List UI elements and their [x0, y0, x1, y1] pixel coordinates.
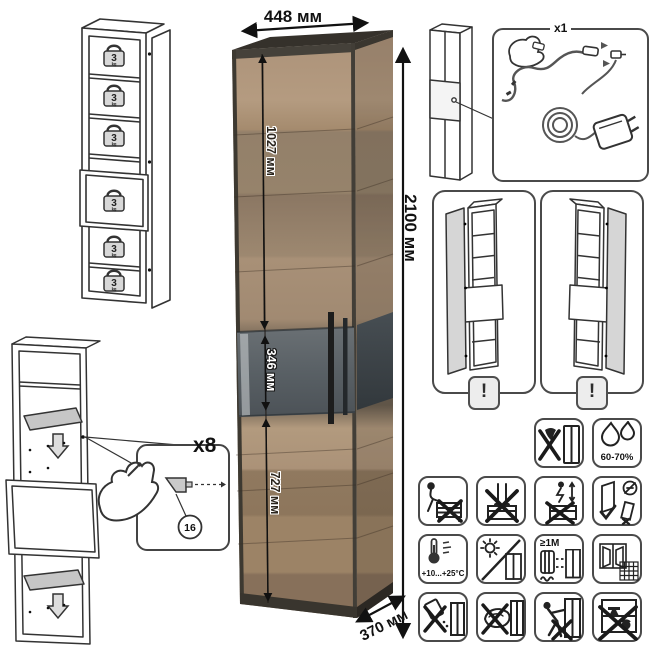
- temperature-label: +10...+25°C: [420, 569, 466, 578]
- cabinet-product-render: [225, 25, 425, 640]
- middle-section-label: 346 мм: [264, 340, 278, 400]
- cable-hole: [452, 98, 456, 102]
- shelf-load-diagram: 3 kg 3 kg 3 kg 3 kg: [48, 12, 193, 312]
- svg-text:kg: kg: [112, 207, 117, 212]
- hinge-dots: [148, 52, 151, 271]
- door-adjustment-pictogram: [592, 476, 642, 526]
- no-overload-pictogram: [592, 592, 642, 642]
- door-option-right-panel: [540, 190, 644, 394]
- led-kit-panel: x1: [492, 28, 649, 182]
- no-standing-icon: [479, 479, 525, 525]
- right-option-warning-badge: !: [576, 376, 608, 410]
- svg-text:kg: kg: [112, 62, 117, 67]
- part-number-label: 16: [184, 522, 196, 534]
- no-sunlight-icon: [479, 537, 525, 583]
- humidity-pictogram: 60-70%: [592, 418, 642, 468]
- no-jumping-pictogram: [534, 476, 584, 526]
- radiator-distance-pictogram: ≥1М: [534, 534, 584, 584]
- door-handle: [328, 312, 334, 424]
- open-door: [152, 30, 170, 308]
- lower-section-label: 727 мм: [268, 463, 282, 523]
- led-kit-art: [494, 30, 643, 176]
- ventilation-pictogram: [592, 534, 642, 584]
- no-sitting-pictogram: [418, 476, 468, 526]
- no-jumping-icon: [537, 479, 583, 525]
- temperature-pictogram: +10...+25°C: [418, 534, 468, 584]
- power-adapter-icon: [593, 111, 642, 150]
- height-dimension-label: 2100 мм: [400, 186, 420, 270]
- svg-text:kg: kg: [112, 102, 117, 107]
- radiator-distance-label: ≥1М: [540, 538, 559, 549]
- led-qty-label: x1: [550, 21, 571, 35]
- door-option-right-art: [542, 192, 638, 388]
- hand-plugging-icon: [509, 37, 544, 67]
- svg-text:kg: kg: [112, 142, 117, 147]
- cabinet-back-view: [420, 18, 498, 188]
- upper-section-label: 1027 мм: [264, 116, 278, 186]
- shelf-assembly-diagram: x8 16: [0, 330, 235, 650]
- no-abrasive-icon: [479, 595, 525, 641]
- ventilation-icon: [595, 537, 641, 583]
- water-drops-icon: [595, 421, 641, 451]
- humidity-label: 60-70%: [594, 452, 640, 463]
- no-pushing-pictogram: [534, 592, 584, 642]
- left-option-warning-badge: !: [468, 376, 500, 410]
- glass-side: [357, 312, 393, 410]
- hardware-qty-label: x8: [193, 434, 217, 457]
- no-impact-icon: [537, 421, 583, 467]
- no-standing-pictogram: [476, 476, 526, 526]
- no-pushing-icon: [537, 595, 583, 641]
- connector-and-jack: [583, 42, 626, 67]
- no-sunlight-pictogram: [476, 534, 526, 584]
- instruction-sheet: 3 kg 3 kg 3 kg 3 kg: [0, 0, 650, 650]
- svg-text:kg: kg: [112, 253, 117, 258]
- no-abrasive-pictogram: [476, 592, 526, 642]
- no-spill-icon: [421, 595, 467, 641]
- svg-text:kg: kg: [112, 287, 117, 292]
- no-impact-pictogram: [534, 418, 584, 468]
- radiator-distance-icon: [537, 549, 583, 582]
- care-pictogram-grid: 60-70%: [412, 412, 650, 650]
- no-overload-icon: [595, 595, 641, 641]
- glass-door-front: [237, 327, 355, 417]
- width-dimension-label: 448 мм: [248, 7, 338, 27]
- thermometer-icon: [421, 537, 467, 567]
- no-spill-pictogram: [418, 592, 468, 642]
- door-option-left-panel: [432, 190, 536, 394]
- door-adjustment-icon: [595, 479, 641, 525]
- glass-frame-bar: [343, 318, 348, 415]
- no-sitting-icon: [421, 479, 467, 525]
- door-option-left-art: [434, 192, 530, 388]
